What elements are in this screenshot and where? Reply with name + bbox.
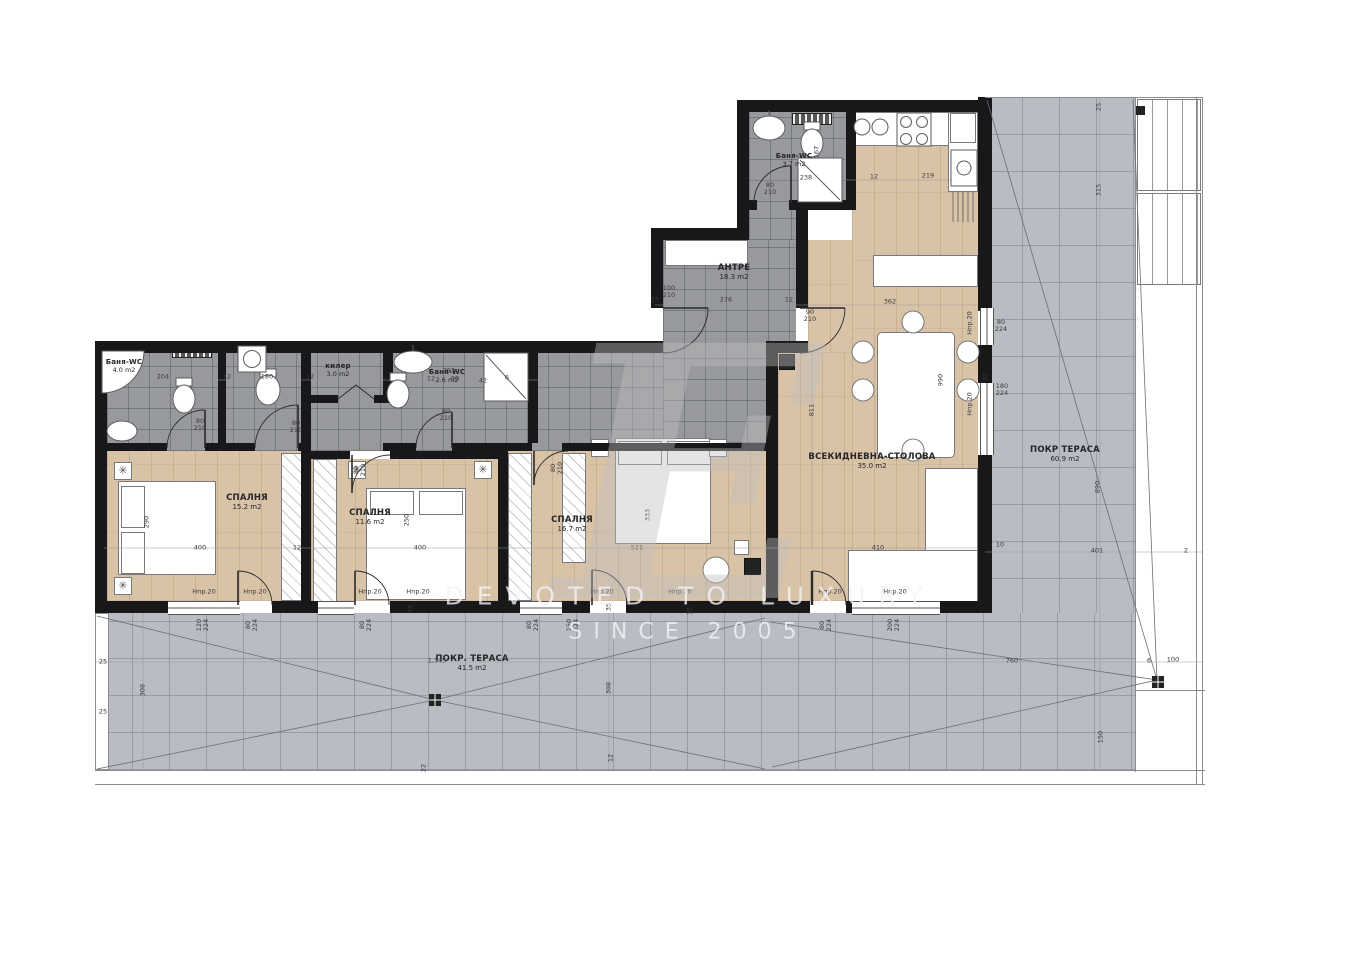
kitchen-fixtures [854, 113, 977, 222]
kitchen-sink-icon [854, 119, 870, 135]
chair-icon [852, 379, 874, 401]
sink-icon [753, 116, 785, 140]
chair-icon [902, 311, 924, 333]
chair-icon [852, 341, 874, 363]
slope-lines [97, 100, 1157, 769]
dim-lines [95, 97, 1203, 769]
sink-icon [394, 351, 432, 373]
drain-icon [1136, 106, 1145, 115]
toilet-icon [256, 375, 280, 405]
page: { "watermark": { "letter": "E", "line1":… [0, 0, 1366, 966]
toilet-icon [173, 385, 195, 413]
chair-icon [902, 439, 924, 461]
corner-shower-icon [102, 351, 144, 393]
drains [429, 106, 1164, 706]
symbols-layer [0, 0, 1366, 966]
toilet-icon [801, 129, 823, 157]
chairs [703, 311, 979, 583]
sink-icon [107, 421, 137, 441]
toilet-icon [387, 380, 409, 408]
chair-icon [957, 379, 979, 401]
desk-chair-icon [703, 557, 729, 583]
bath-fixtures [102, 110, 842, 441]
floor-plan: ✳✳✳✳✳✳ [0, 0, 1366, 966]
chair-icon [957, 341, 979, 363]
